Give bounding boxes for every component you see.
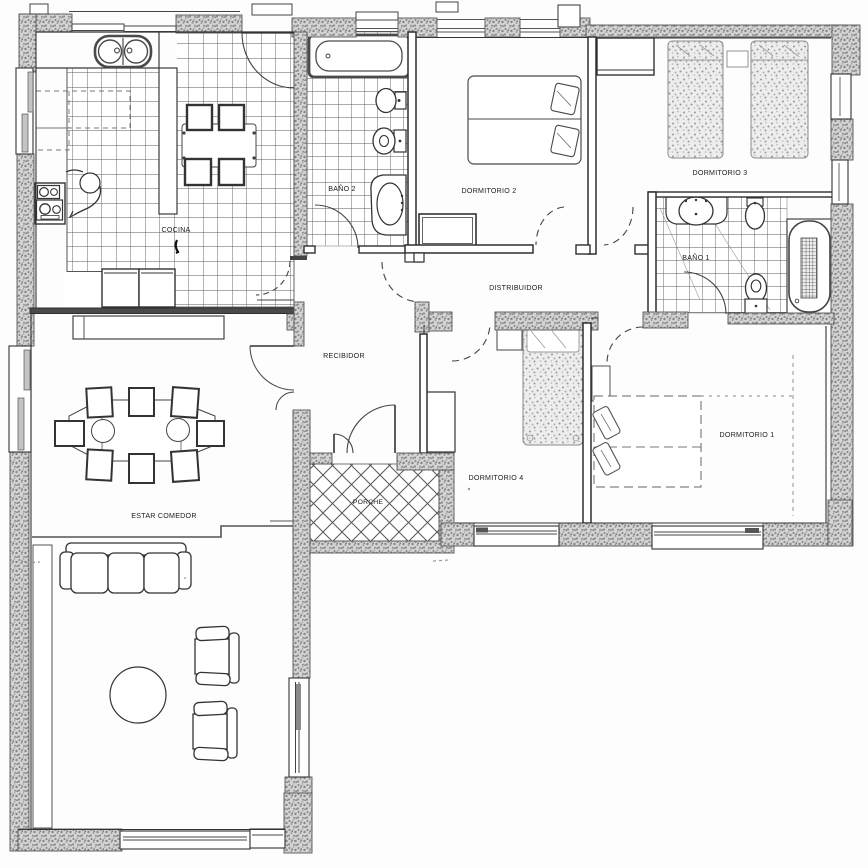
svg-text:PORCHE: PORCHE <box>353 499 384 506</box>
svg-text:DORMITORIO 2: DORMITORIO 2 <box>462 187 517 195</box>
svg-text:ESTAR COMEDOR: ESTAR COMEDOR <box>131 512 196 520</box>
svg-text:DORMITORIO 3: DORMITORIO 3 <box>693 169 748 177</box>
svg-text:DORMITORIO 1: DORMITORIO 1 <box>720 431 775 439</box>
svg-text:DISTRIBUIDOR: DISTRIBUIDOR <box>489 284 543 292</box>
svg-text:COCINA: COCINA <box>161 226 190 234</box>
svg-text:RECIBIDOR: RECIBIDOR <box>323 352 365 360</box>
svg-text:BAÑO 2: BAÑO 2 <box>328 184 356 193</box>
svg-text:BAÑO 1: BAÑO 1 <box>682 253 710 262</box>
svg-text:DORMITORIO 4: DORMITORIO 4 <box>469 474 524 482</box>
